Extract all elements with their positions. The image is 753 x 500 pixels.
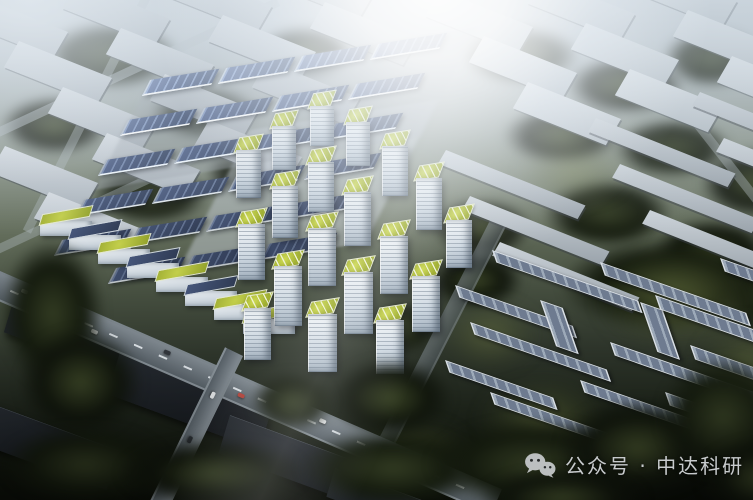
sun-glare-haze (0, 0, 753, 500)
aerial-rendering: 公众号 · 中达科研 (0, 0, 753, 500)
wechat-icon (524, 452, 556, 478)
watermark-text: 公众号 · 中达科研 (565, 450, 744, 479)
watermark: 公众号 · 中达科研 (524, 450, 744, 479)
